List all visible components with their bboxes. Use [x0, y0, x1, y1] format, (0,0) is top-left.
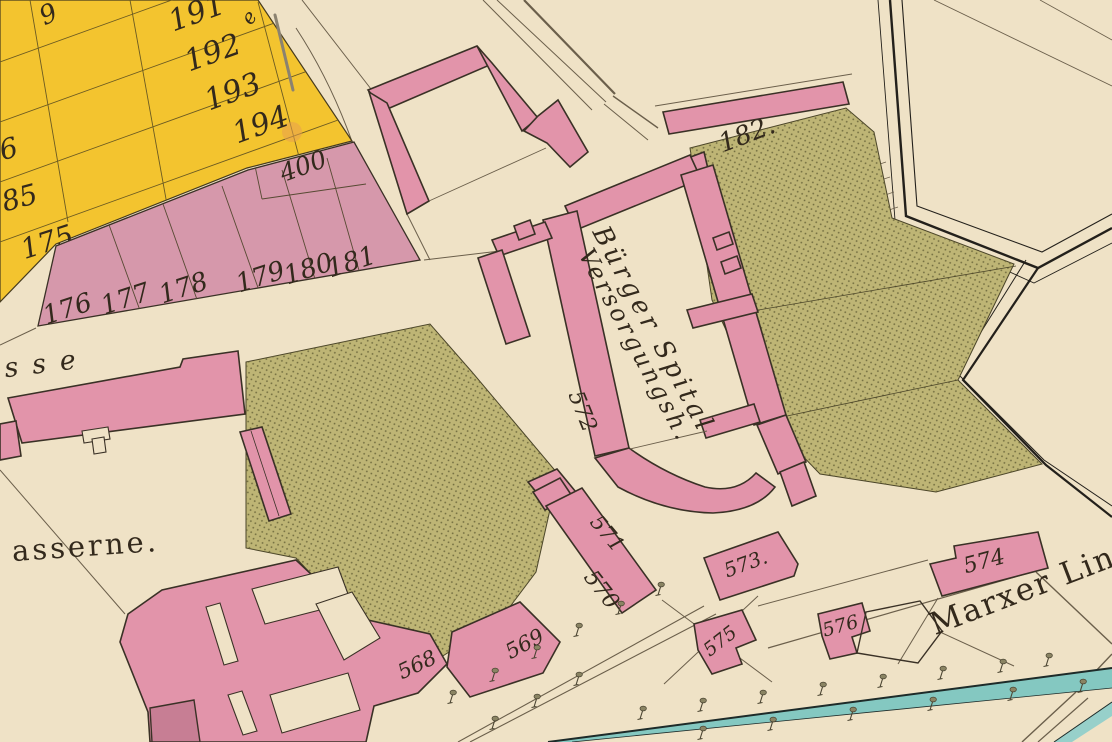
historical-map-canvas: 9 191 192 193 194 6 85 175 400 176 177 1…	[0, 0, 1112, 742]
map-svg: 9 191 192 193 194 6 85 175 400 176 177 1…	[0, 0, 1112, 742]
barracks-dark-block	[150, 700, 200, 742]
building-notch-2	[92, 437, 106, 454]
